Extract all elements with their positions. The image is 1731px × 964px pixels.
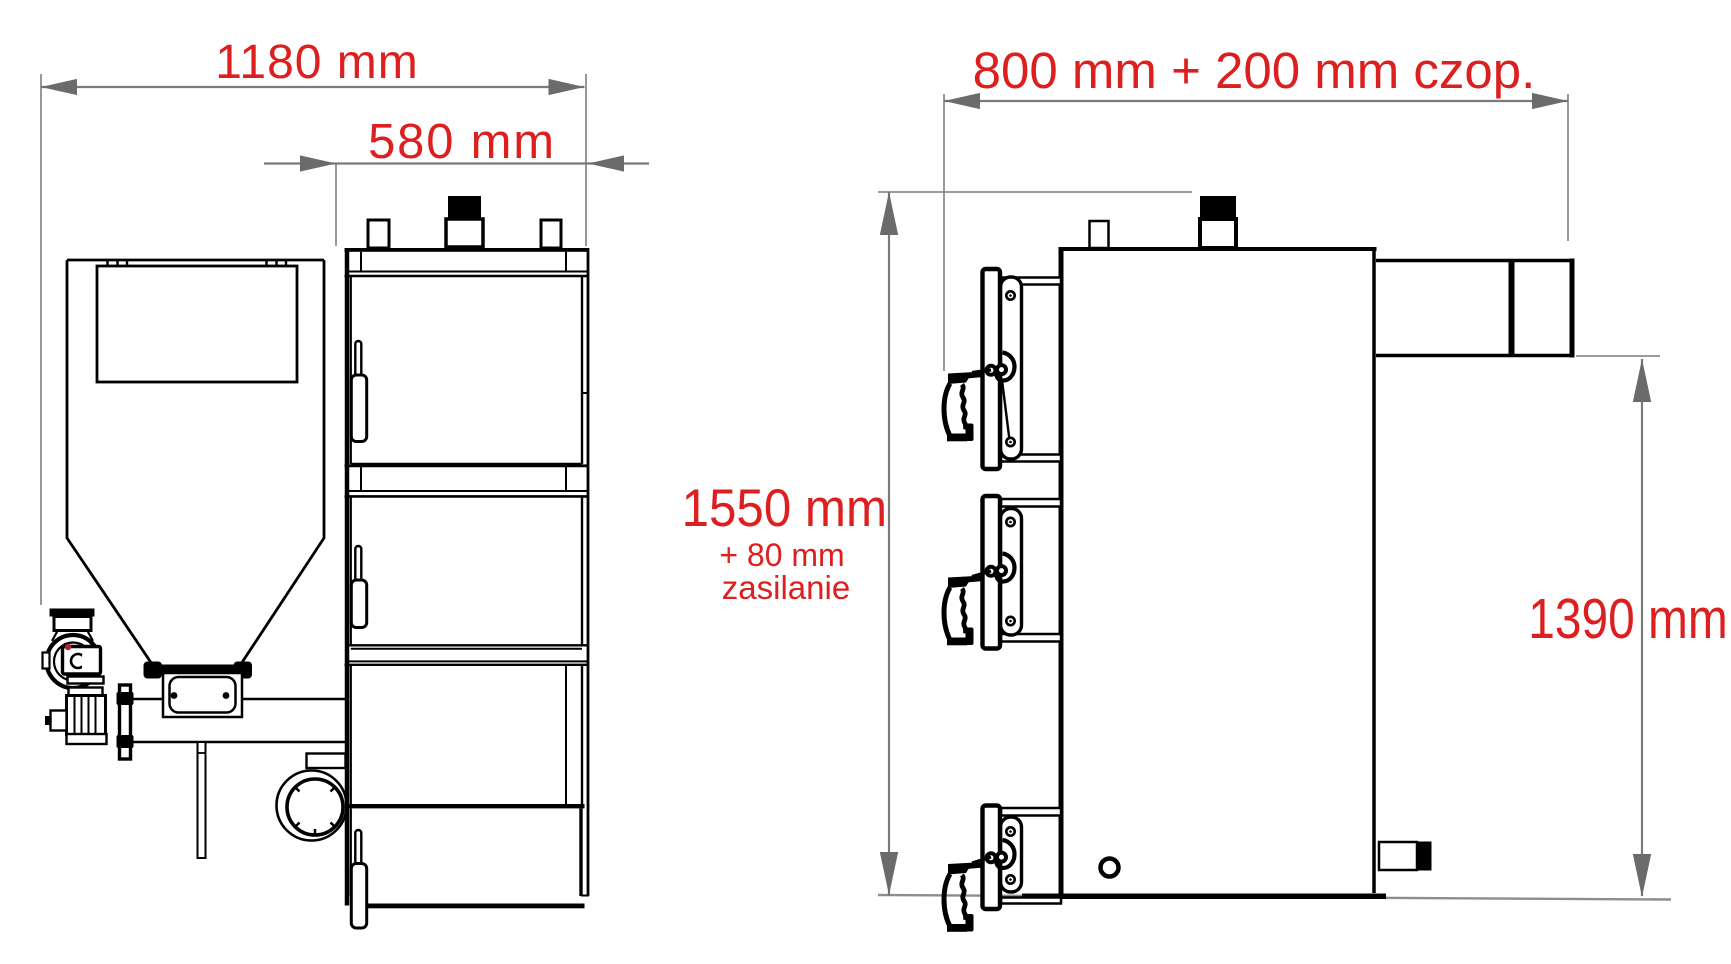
- svg-text:580 mm: 580 mm: [368, 115, 556, 169]
- svg-text:1550 mm: 1550 mm: [682, 478, 887, 537]
- svg-text:800 mm + 200 mm czop.: 800 mm + 200 mm czop.: [973, 42, 1536, 99]
- svg-text:1390 mm: 1390 mm: [1528, 587, 1728, 651]
- svg-text:1180 mm: 1180 mm: [215, 36, 419, 89]
- svg-text:+ 80 mm: + 80 mm: [719, 537, 844, 573]
- svg-text:zasilanie: zasilanie: [722, 569, 850, 606]
